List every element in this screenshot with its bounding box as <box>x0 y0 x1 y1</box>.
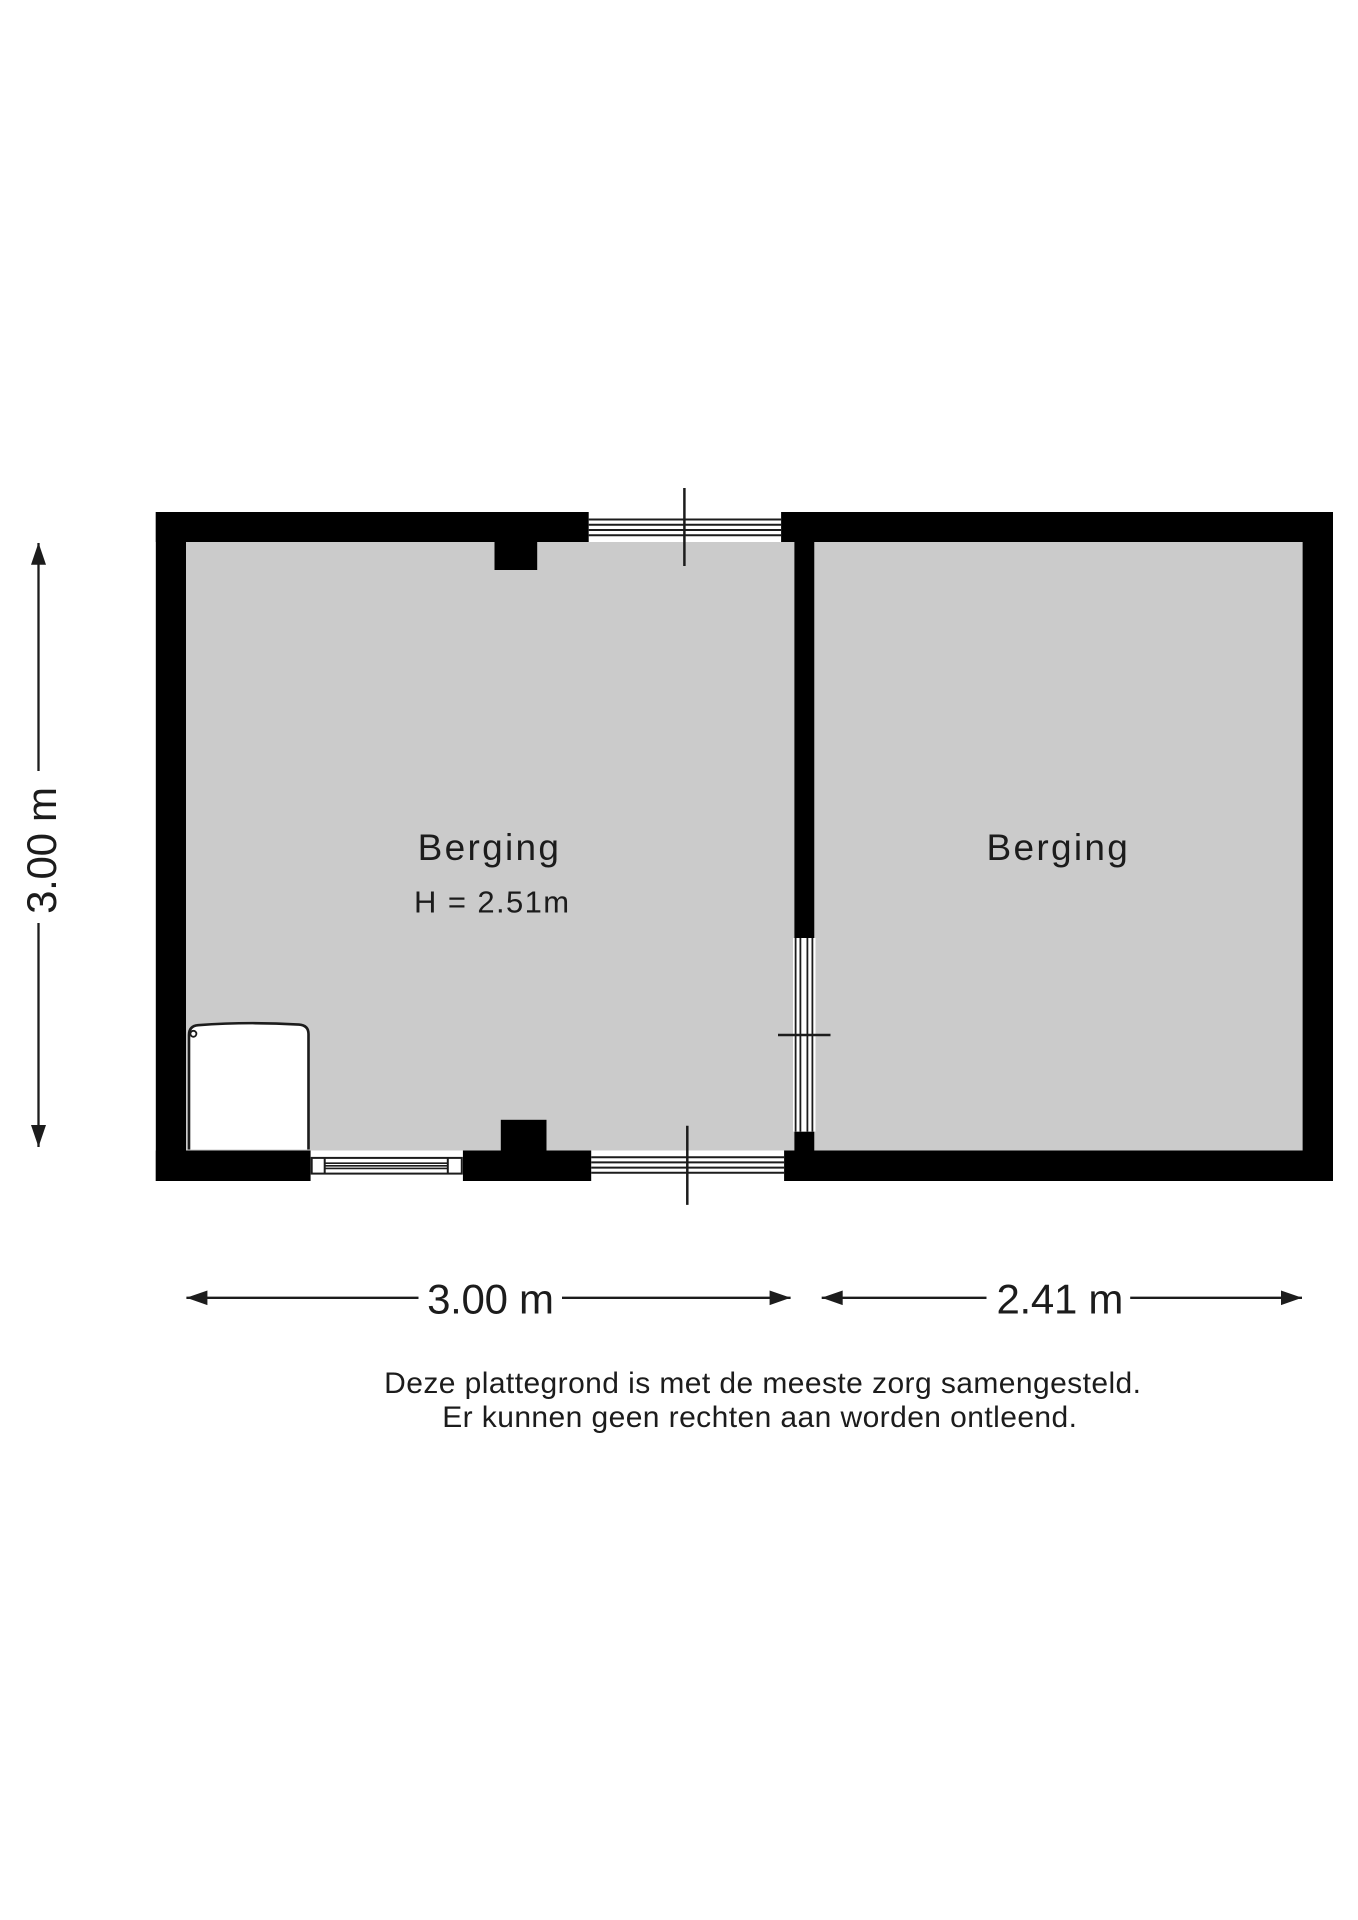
svg-text:Berging: Berging <box>986 827 1130 868</box>
svg-text:Deze plattegrond is met de mee: Deze plattegrond is met de meeste zorg s… <box>384 1367 1141 1400</box>
svg-text:Berging: Berging <box>418 827 562 868</box>
svg-text:3.00 m: 3.00 m <box>18 787 65 914</box>
svg-text:Er kunnen geen rechten aan wor: Er kunnen geen rechten aan worden ontlee… <box>442 1401 1077 1434</box>
svg-text:2.41 m: 2.41 m <box>996 1276 1123 1323</box>
svg-text:H = 2.51m: H = 2.51m <box>414 884 570 919</box>
svg-text:3.00 m: 3.00 m <box>427 1276 554 1323</box>
